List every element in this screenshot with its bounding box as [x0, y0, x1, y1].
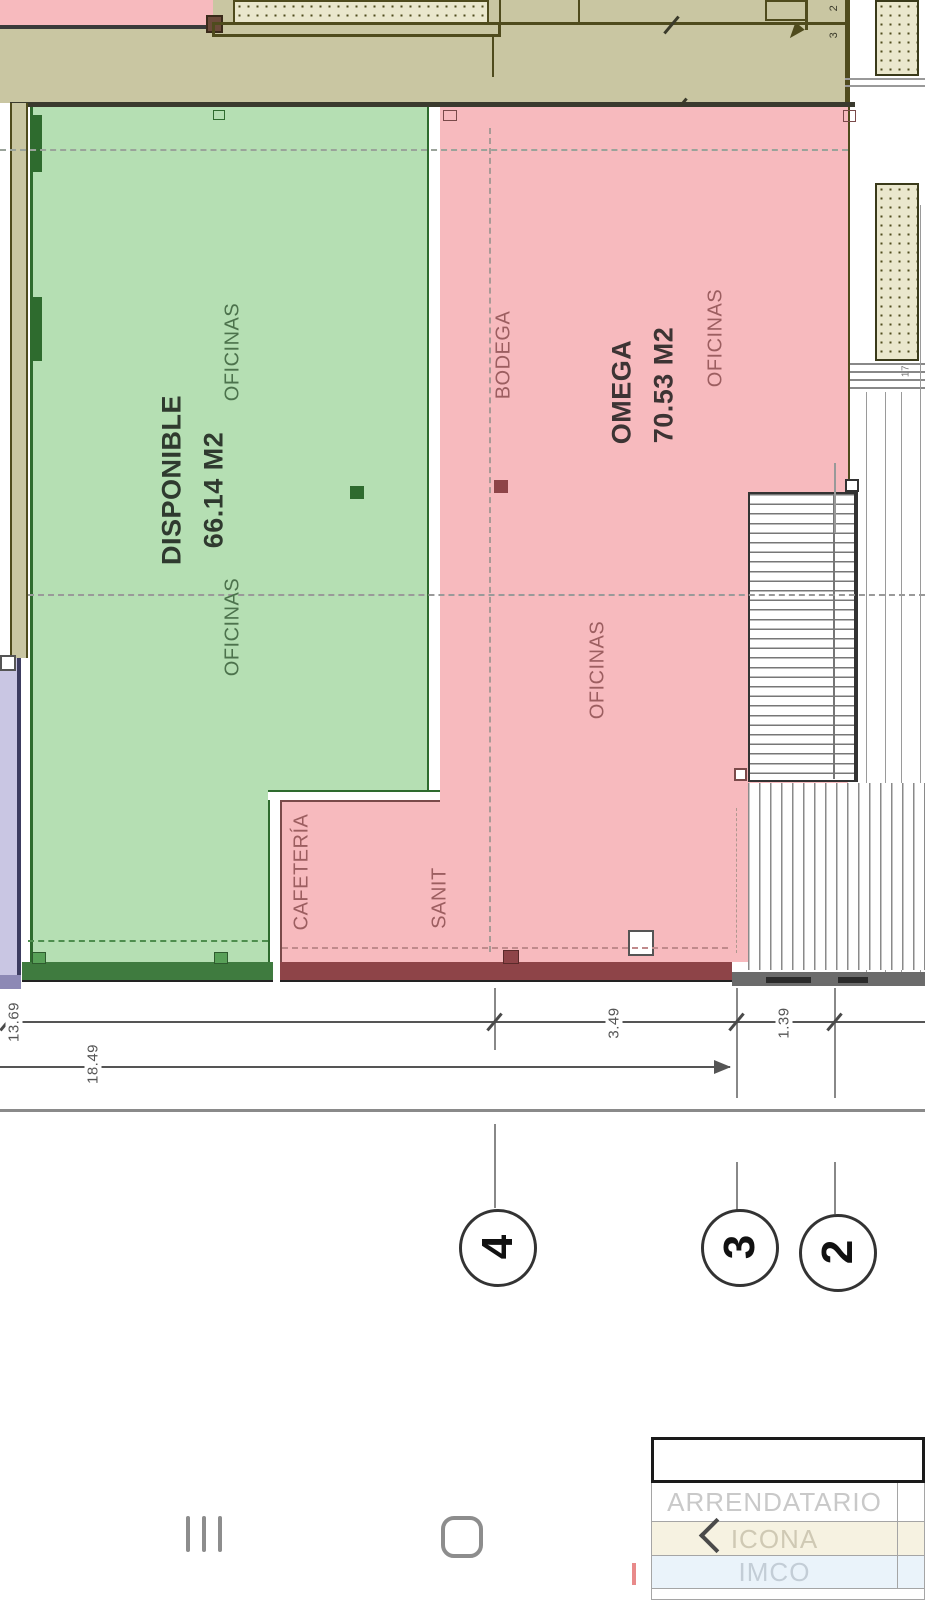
dim-text: 13.69: [6, 1000, 23, 1044]
column-hatch-mid: [875, 183, 919, 361]
party-wall-gap-vertical: [427, 107, 440, 802]
upper-wall-line: [0, 25, 213, 29]
centerline-v-short: [736, 808, 737, 953]
strip-line: [845, 78, 925, 80]
door-jamb: [30, 115, 42, 172]
dim-small-17: 17: [901, 365, 912, 377]
green-wall-column: [214, 952, 228, 964]
strip-band-line: [850, 363, 925, 365]
wall-square-outline: [443, 110, 457, 121]
back-icon: [699, 1518, 734, 1553]
grid-bubble-label: 3: [715, 1235, 765, 1259]
dim-small-2: 2: [828, 5, 840, 12]
extension-line: [834, 988, 836, 1098]
grid-line-segment: [834, 463, 836, 533]
dim-text: 1.39: [776, 1005, 793, 1040]
white-square-fixture: [628, 930, 654, 956]
grid-stem: [736, 1162, 738, 1210]
centerline-v: [489, 128, 491, 952]
glass-line-green: [28, 940, 268, 942]
dim-arrow-head-icon: [714, 1060, 731, 1074]
deck-boards: [748, 783, 925, 970]
glass-line-pink: [282, 947, 728, 949]
strip-band-line: [850, 379, 925, 381]
recents-icon: [186, 1516, 190, 1552]
dim-line-2: [0, 1066, 730, 1068]
grid-bubble-2: 2: [799, 1214, 877, 1292]
party-wall-gap-vertical-2: [268, 800, 280, 962]
android-navbar: [0, 1440, 925, 1600]
dim-text: 18.49: [85, 1042, 102, 1086]
dim-text: 3.49: [606, 1005, 623, 1040]
recents-icon: [202, 1516, 206, 1552]
purple-notch-square: [0, 655, 16, 671]
home-icon: [441, 1516, 483, 1558]
gray-strip-dash: [766, 977, 811, 983]
unit-name-label: DISPONIBLE: [157, 395, 188, 565]
grid-bubble-3: 3: [701, 1209, 779, 1287]
grid-stem: [834, 1162, 836, 1214]
room-label-oficinas: OFICINAS: [222, 578, 245, 676]
unit-area-label: 70.53 M2: [649, 327, 680, 444]
green-bottom-wall: [22, 962, 273, 982]
door-jamb: [30, 297, 42, 361]
green-wall-column: [32, 952, 46, 964]
column-hatch-top: [875, 0, 919, 76]
stairs-corner-square: [845, 479, 859, 492]
view-edge-line: [0, 1109, 925, 1112]
grid-bubble-label: 2: [813, 1240, 863, 1264]
gray-bottom-strip: [732, 972, 925, 986]
column-marker: [494, 480, 508, 493]
home-button[interactable]: [436, 1513, 488, 1565]
unit-area-label: 66.14 M2: [199, 432, 230, 549]
olive-divider-3: [578, 0, 580, 25]
floorplan-canvas[interactable]: 2 3 17: [0, 0, 925, 1440]
extension-line: [736, 988, 738, 1098]
centerline-h: [0, 149, 848, 151]
phone-screen: 2 3 17: [0, 0, 925, 1600]
upper-floor-pink-sliver: [0, 0, 213, 25]
grid-bubble-label: 4: [473, 1235, 523, 1259]
leader-arrow-shaft: [805, 0, 808, 30]
neighbour-purple-foot: [0, 975, 21, 989]
room-label-oficinas: OFICINAS: [705, 289, 728, 387]
stairs-upper: [748, 492, 858, 782]
red-wall-column: [503, 950, 519, 964]
left-wall-strip: [10, 103, 28, 658]
grid-stem: [494, 1124, 496, 1208]
room-label-oficinas: OFICINAS: [222, 303, 245, 401]
room-label-bodega: BODEGA: [493, 311, 516, 400]
stairs-guide-line: [833, 495, 835, 779]
recents-button[interactable]: [176, 1511, 232, 1557]
strip-band-line: [850, 387, 925, 389]
centerline-h: [28, 594, 925, 596]
gray-strip-dash: [838, 977, 868, 983]
wall-square-outline: [213, 110, 225, 120]
room-label-cafeteria: CAFETERÍA: [291, 814, 314, 931]
dim-small-3: 3: [828, 32, 840, 39]
strip-line: [845, 85, 925, 87]
room-label-sanit: SANIT: [429, 867, 452, 928]
grid-bubble-4: 4: [459, 1209, 537, 1287]
recents-icon: [218, 1516, 222, 1552]
top-right-box: [765, 0, 808, 21]
room-label-oficinas: OFICINAS: [587, 621, 610, 719]
olive-divider-2: [492, 37, 494, 77]
wall-square-outline: [843, 110, 856, 122]
back-button[interactable]: [690, 1510, 742, 1566]
deck-corner-square: [734, 768, 747, 781]
neighbour-purple-strip: [0, 658, 21, 988]
column-marker: [350, 486, 364, 499]
strip-band-line: [850, 371, 925, 373]
olive-divider-1: [499, 0, 501, 37]
unit-name-label: OMEGA: [607, 340, 638, 445]
red-bottom-wall: [280, 962, 732, 982]
sill-frame: [212, 22, 501, 37]
